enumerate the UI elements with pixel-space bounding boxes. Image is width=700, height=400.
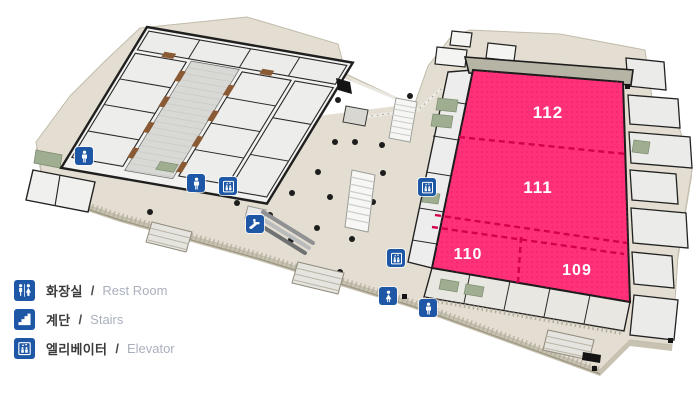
hall-112-label: 112 (533, 103, 563, 122)
legend-item-restroom: 화장실 / Rest Room (14, 280, 175, 301)
legend-item-elevator: 엘리베이터 / Elevator (14, 338, 175, 359)
legend-separator: / (115, 341, 119, 356)
legend-label-en: Elevator (127, 341, 175, 356)
legend-label-ko: 계단 (46, 310, 71, 329)
elevator-icon (14, 338, 35, 359)
legend: 화장실 / Rest Room 계단 / Stairs 엘리베이터 / Elev… (14, 280, 175, 359)
legend-item-stairs: 계단 / Stairs (14, 309, 175, 330)
legend-separator: / (79, 312, 83, 327)
legend-separator: / (91, 283, 95, 298)
stairs-icon (14, 309, 35, 330)
hall-111-label: 111 (523, 178, 553, 197)
hall-109-label: 109 (562, 262, 592, 279)
restroom-icon[interactable] (419, 299, 437, 317)
hall-110-label: 110 (454, 246, 483, 263)
elevator-icon[interactable] (387, 249, 405, 267)
restroom-icon (14, 280, 35, 301)
legend-label-en: Rest Room (102, 283, 167, 298)
legend-label-ko: 화장실 (46, 281, 83, 300)
elevator-icon[interactable] (219, 177, 237, 195)
restroom-icon[interactable] (187, 174, 205, 192)
legend-label-ko: 엘리베이터 (46, 339, 107, 358)
restroom-icon[interactable] (379, 287, 397, 305)
floor-map-page: 112 111 110 109 화장실 / Rest Room (0, 0, 700, 400)
restroom-icon[interactable] (75, 147, 93, 165)
legend-label-en: Stairs (90, 312, 123, 327)
escalator-icon[interactable] (246, 215, 264, 233)
elevator-icon[interactable] (418, 178, 436, 196)
